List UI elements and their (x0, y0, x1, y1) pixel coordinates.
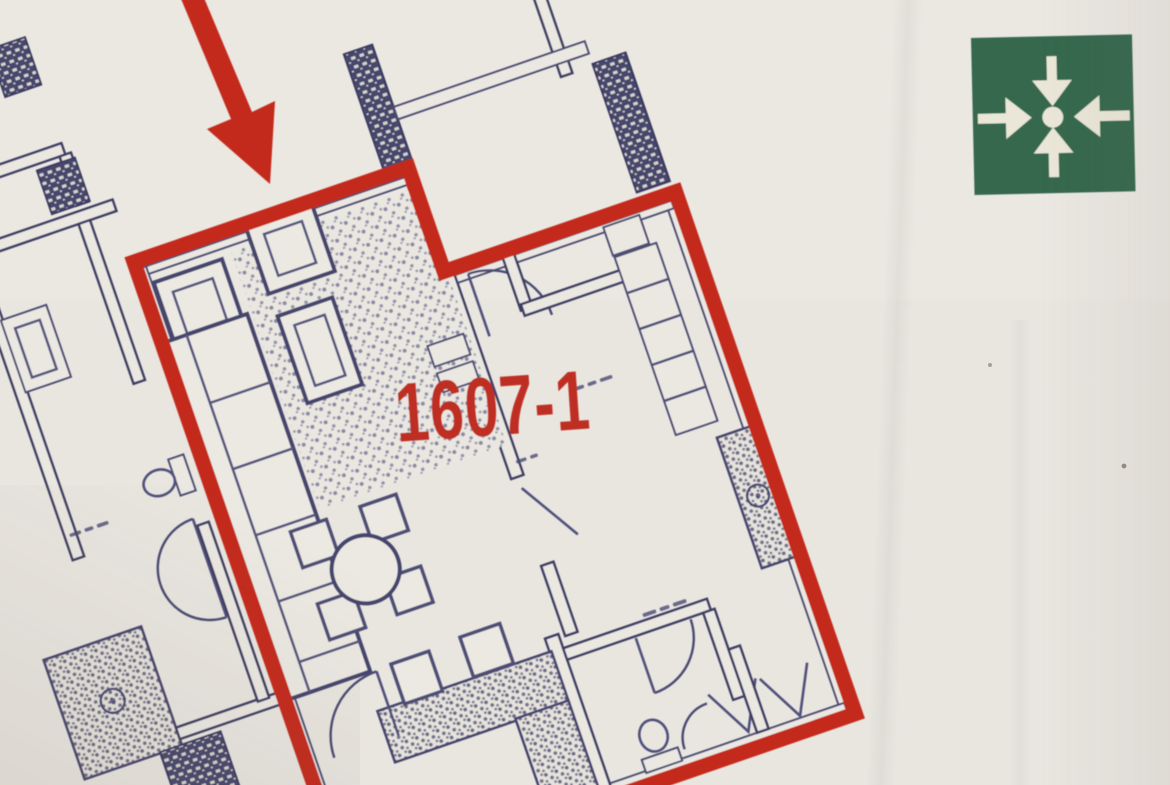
unit-label: 1607-1 (392, 352, 593, 460)
paper-speck (1122, 464, 1127, 469)
floorplan-photo: 1607-1 (0, 0, 1170, 785)
paper-speck (988, 363, 992, 367)
